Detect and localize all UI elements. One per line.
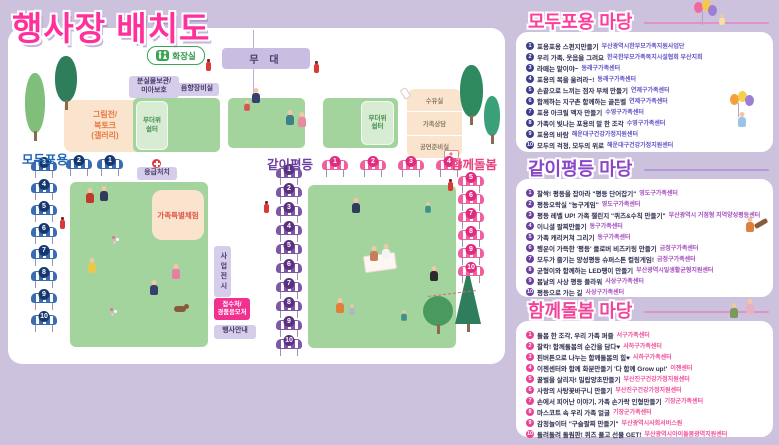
program-item-number: 5 xyxy=(526,375,534,383)
program-item-number: 9 xyxy=(526,419,534,427)
program-item-number: 1 xyxy=(526,42,534,50)
program-item: 3라떼는 말이야~동래구가족센터 xyxy=(526,62,765,73)
program-item-number: 10 xyxy=(526,430,534,438)
booth-number: 10 xyxy=(284,335,295,346)
program-item-org: 영도구가족센터 xyxy=(639,188,678,197)
zone-label-care: 함께돌봄 xyxy=(451,154,497,173)
program-item-org: 동래구가족센터 xyxy=(581,63,620,72)
program-item: 2찰칵! 함께돌봄의 순간을 담다♥사하구가족센터 xyxy=(526,340,765,351)
program-item-number: 7 xyxy=(526,255,534,263)
panel-care: 함께돌봄 마당 1돌봄 한 조각, 우리 가족 퍼즐서구가족센터2찰칵! 함께돌… xyxy=(516,297,773,323)
booth-inclusion-7: 7 xyxy=(31,249,57,269)
program-item-activity: 평등오락실 "농구게임" xyxy=(537,199,599,209)
person-with-balloons-figure xyxy=(738,112,746,127)
program-item-activity: 포용 아크릴 액자 만들기 xyxy=(537,107,602,117)
program-item: 7모두가 즐기는 양성평등 슈퍼스톤 컬링게임!금정구가족센터 xyxy=(526,253,765,264)
booth-inclusion-4: 4 xyxy=(31,183,57,203)
zone-label-equality: 같이평등 xyxy=(267,154,313,173)
program-item-org: 기장군가족센터 xyxy=(664,396,703,405)
panel-body: 1찰싹! 평등을 잡아라 "평등 단어잡기"영도구가족센터2평등오락실 "농구게… xyxy=(516,179,773,297)
page-title: 행사장 배치도 xyxy=(12,2,210,50)
exhibit-label: 사업전시 xyxy=(214,246,231,297)
booth-number: 9 xyxy=(284,316,295,327)
program-item: 8가족이 빛나는 포용의 말 한 조각수영구가족센터 xyxy=(526,117,765,128)
dog-icon xyxy=(174,306,186,312)
booth-number: 3 xyxy=(406,156,417,167)
booth-number: 2 xyxy=(74,155,85,166)
program-item-org: 사하구가족센터 xyxy=(623,341,662,350)
program-list: 1찰싹! 평등을 잡아라 "평등 단어잡기"영도구가족센터2평등오락실 "농구게… xyxy=(526,187,765,297)
program-item-org: 사하구가족센터 xyxy=(633,352,672,361)
reception-label: 접수처/ 경품응모처 xyxy=(214,298,250,320)
program-item-activity: 찰칵! 함께돌봄의 순간을 담다♥ xyxy=(537,341,620,351)
tree-icon xyxy=(55,56,77,110)
person-with-guitar-figure xyxy=(746,217,754,232)
booth-number: 3 xyxy=(284,202,295,213)
person-figure xyxy=(370,246,378,261)
program-item-org: 부산진구건강가정지원센터 xyxy=(624,374,690,383)
program-item-org: 기장군가족센터 xyxy=(613,407,652,416)
program-item: 8균형이와 함께하는 LED팽이 만들기부산광역시일생활균형지원센터 xyxy=(526,264,765,275)
program-item: 4포용의 복을 울려라~!동래구가족센터 xyxy=(526,73,765,84)
program-item-number: 6 xyxy=(526,386,534,394)
person-figure xyxy=(336,298,344,313)
seated-person-figure xyxy=(730,303,738,318)
program-item-activity: 포용포용 스펀지만들기 xyxy=(537,41,599,51)
program-item-number: 4 xyxy=(526,222,534,230)
program-item-number: 5 xyxy=(526,233,534,241)
program-item-activity: 평등 레벨 UP! 가족 챌린지 "퀴즈&수칙 만들기" xyxy=(537,210,666,220)
booth-inclusion-5: 5 xyxy=(31,205,57,225)
red-cross-icon xyxy=(152,159,161,168)
first-aid-label: 응급처치 xyxy=(137,167,177,180)
booth-number: 9 xyxy=(466,244,477,255)
program-item-activity: 가족 캐리커쳐 그리기 xyxy=(537,232,594,242)
program-item: 3평등 레벨 UP! 가족 챌린지 "퀴즈&수칙 만들기"부산광역시 거점형 지… xyxy=(526,209,765,220)
person-figure xyxy=(286,110,294,125)
program-list: 1포용포용 스펀지만들기부산광역시한부모가족지원사업단2우리 가족, 웃음을 그… xyxy=(526,40,765,150)
program-item-activity: 찰싹! 평등을 잡아라 "평등 단어잡기" xyxy=(537,188,636,198)
program-item-activity: 평등으로 가는 길 xyxy=(537,287,582,297)
person-figure xyxy=(425,202,431,213)
person-figure xyxy=(100,186,108,201)
fire-extinguisher-icon xyxy=(264,204,269,213)
booth-number: 5 xyxy=(39,201,50,212)
program-item: 8마스코트 속 우리 가족 얼굴기장군가족센터 xyxy=(526,406,765,417)
program-item-org: 부산광역시사회서비스원 xyxy=(622,418,683,427)
person-figure xyxy=(401,310,407,321)
program-item-org: 동구가족센터 xyxy=(597,232,630,241)
program-item-org: 한국한부모가족복지시설협회 부산지회 xyxy=(607,52,703,61)
booth-number: 10 xyxy=(39,311,50,322)
panel-inclusion: 모두포용 마당 1포용포용 스펀지만들기부산광역시한부모가족지원사업단2우리 가… xyxy=(516,8,773,34)
program-item-activity: 꿀벌을 살리자! 밀랍양초만들기 xyxy=(537,374,621,384)
program-item-org: 해운대구건강가정지원센터 xyxy=(572,129,638,138)
booth-number: 8 xyxy=(284,297,295,308)
zone-label-inclusion: 모두포용 xyxy=(22,149,68,168)
program-item-number: 5 xyxy=(526,86,534,94)
program-item-org: 사상구가족센터 xyxy=(585,287,624,296)
program-item: 9포용의 바람해운대구건강가정지원센터 xyxy=(526,128,765,139)
program-item-org: 연제구가족센터 xyxy=(629,96,668,105)
program-item-activity: 핀버튼으로 나누는 함께돌봄의 힘♥ xyxy=(537,352,630,362)
tree-icon xyxy=(484,96,500,144)
person-figure xyxy=(172,264,180,279)
program-item: 10평등으로 가는 길사상구가족센터 xyxy=(526,286,765,297)
booth-number: 6 xyxy=(39,223,50,234)
flowers-icon xyxy=(112,236,122,244)
program-item-org: 동래구가족센터 xyxy=(597,74,636,83)
program-item-activity: 우리 가족, 웃음을 그려요 xyxy=(537,52,604,62)
service-rooms: 수유실 가족상담 공연준비실 xyxy=(407,89,462,158)
flowers-icon xyxy=(110,308,120,316)
tree-icon xyxy=(25,73,45,141)
person-figure xyxy=(719,14,725,25)
program-item: 1찰싹! 평등을 잡아라 "평등 단어잡기"영도구가족센터 xyxy=(526,187,765,198)
event-info-label: 행사안내 xyxy=(214,325,256,339)
program-item-activity: 사랑의 사탕꽃바구니 만들기 xyxy=(537,385,612,395)
program-item-number: 2 xyxy=(526,200,534,208)
booth-number: 2 xyxy=(284,183,295,194)
program-item: 5가족 캐리커쳐 그리기동구가족센터 xyxy=(526,231,765,242)
program-item-number: 8 xyxy=(526,119,534,127)
program-item-activity: 포용의 바람 xyxy=(537,129,569,139)
program-item-number: 8 xyxy=(526,266,534,274)
booth-number: 9 xyxy=(39,289,50,300)
panel-title: 같이평등 마당 xyxy=(528,155,773,181)
booth-inclusion-10: 10 xyxy=(31,315,57,335)
program-item-number: 9 xyxy=(526,277,534,285)
program-item: 1포용포용 스펀지만들기부산광역시한부모가족지원사업단 xyxy=(526,40,765,51)
person-figure xyxy=(244,100,250,111)
panel-body: 1돌봄 한 조각, 우리 가족 퍼즐서구가족센터2찰칵! 함께돌봄의 순간을 담… xyxy=(516,321,773,437)
person-figure xyxy=(88,258,96,273)
program-item-activity: 이니셜 팔찌만들기 xyxy=(537,221,587,231)
program-item: 7포용 아크릴 액자 만들기수영구가족센터 xyxy=(526,106,765,117)
booth-care-1: 1 xyxy=(322,160,348,180)
person-figure xyxy=(252,88,260,103)
booth-care-3: 3 xyxy=(398,160,424,180)
program-item: 9감정놀이터 "구슬팔찌 만들기"부산광역시사회서비스원 xyxy=(526,417,765,428)
person-figure xyxy=(150,280,158,295)
panel-body: 1포용포용 스펀지만들기부산광역시한부모가족지원사업단2우리 가족, 웃음을 그… xyxy=(516,32,773,152)
program-item-activity: 함께하는 지구촌 함께하는 골든벨 xyxy=(537,96,626,106)
booth-number: 6 xyxy=(466,190,477,201)
person-figure xyxy=(349,304,355,315)
program-item-activity: 라떼는 말이야~ xyxy=(537,63,578,73)
program-item: 9봄날의 사상 평등 플라워사상구가족센터 xyxy=(526,275,765,286)
booth-number: 4 xyxy=(284,221,295,232)
event-layout-poster: 행사장 배치도 화장실 무 대 분실물보관/ 미아보호 음향장비실 xyxy=(0,0,779,445)
program-item: 5손끝으로 느끼는 점자 부채 만들기연제구가족센터 xyxy=(526,84,765,95)
program-item-number: 7 xyxy=(526,397,534,405)
program-item-number: 1 xyxy=(526,189,534,197)
program-item: 6행운이 가득한 '평등' 클로버 비즈키링 만들기금정구가족센터 xyxy=(526,242,765,253)
program-item: 4이니셜 팔찌만들기동구가족센터 xyxy=(526,220,765,231)
booth-number: 7 xyxy=(284,278,295,289)
venue-map: 화장실 무 대 분실물보관/ 미아보호 음향장비실 그림전/ 북토크 (갤러리)… xyxy=(8,28,505,364)
program-item-org: 금정구가족센터 xyxy=(657,254,696,263)
sound-room-label: 음향장비실 xyxy=(175,83,219,96)
program-item: 5꿀벌을 살리자! 밀랍양초만들기부산진구건강가정지원센터 xyxy=(526,373,765,384)
program-item-number: 6 xyxy=(526,97,534,105)
booth-number: 8 xyxy=(39,267,50,278)
program-item-number: 8 xyxy=(526,408,534,416)
program-item: 7손에서 피어난 이야기, 가족 손가락 인형만들기기장군가족센터 xyxy=(526,395,765,406)
program-item-number: 4 xyxy=(526,75,534,83)
booth-inclusion-9: 9 xyxy=(31,293,57,313)
panel-title: 모두포용 마당 xyxy=(528,8,773,34)
booth-inclusion-2: 2 xyxy=(66,159,92,179)
family-counsel-label: 가족상담 xyxy=(407,112,462,135)
program-item-number: 1 xyxy=(526,331,534,339)
person-figure xyxy=(382,244,390,259)
program-item-org: 부산광역시한부모가족지원사업단 xyxy=(602,41,685,50)
program-item-number: 3 xyxy=(526,353,534,361)
booth-number: 7 xyxy=(39,245,50,256)
program-item: 10돌려돌려 돌림판! 퀴즈 풀고 선물 GET!부산광역시아이돌봄광역지원센터 xyxy=(526,428,765,439)
lost-and-found-label: 분실물보관/ 미아보호 xyxy=(129,76,179,98)
program-item-org: 해운대구건강가정지원센터 xyxy=(607,140,673,149)
booth-number: 2 xyxy=(368,156,379,167)
program-item-number: 2 xyxy=(526,342,534,350)
program-item-number: 3 xyxy=(526,64,534,72)
program-item-activity: 가족이 빛나는 포용의 말 한 조각 xyxy=(537,118,624,128)
person-figure xyxy=(352,198,360,213)
program-item: 2평등오락실 "농구게임"영도구가족센터 xyxy=(526,198,765,209)
program-item-number: 10 xyxy=(526,141,534,149)
program-item-number: 7 xyxy=(526,108,534,116)
booth-inclusion-8: 8 xyxy=(31,271,57,291)
program-item-org: 연제구가족센터 xyxy=(631,85,670,94)
program-item-number: 6 xyxy=(526,244,534,252)
panel-equality: 같이평등 마당 1찰싹! 평등을 잡아라 "평등 단어잡기"영도구가족센터2평등… xyxy=(516,155,773,181)
program-item-number: 3 xyxy=(526,211,534,219)
program-item-org: 부산광역시아이돌봄광역지원센터 xyxy=(644,429,727,438)
booth-care-2: 2 xyxy=(360,160,386,180)
program-item-org: 동구가족센터 xyxy=(590,221,623,230)
booth-inclusion-6: 6 xyxy=(31,227,57,247)
program-item: 6사랑의 사탕꽃바구니 만들기부산진구건강가정지원센터 xyxy=(526,384,765,395)
program-item-activity: 돌봄 한 조각, 우리 가족 퍼즐 xyxy=(537,330,614,340)
heat-shelter-label: 무더위 쉼터 xyxy=(136,101,168,150)
program-item-activity: 균형이와 함께하는 LED팽이 만들기 xyxy=(537,265,633,275)
program-item: 4이젠센터와 함께 화분만들기 '다 함께 Grow up!'이젠센터 xyxy=(526,362,765,373)
program-item-activity: 이젠센터와 함께 화분만들기 '다 함께 Grow up!' xyxy=(537,363,667,373)
program-item-activity: 감정놀이터 "구슬팔찌 만들기" xyxy=(537,418,619,428)
program-item-org: 이젠센터 xyxy=(670,363,692,372)
program-item-activity: 모두의 걱정, 모두의 위로 xyxy=(537,140,604,150)
program-item-activity: 손끝으로 느끼는 점자 부채 만들기 xyxy=(537,85,628,95)
family-experience-label: 가족특별체험 xyxy=(152,190,204,240)
program-item-org: 수영구가족센터 xyxy=(605,107,644,116)
program-item-activity: 손에서 피어난 이야기, 가족 손가락 인형만들기 xyxy=(537,396,661,406)
booth-number: 7 xyxy=(466,208,477,219)
person-figure xyxy=(298,112,306,127)
stage-label: 무 대 xyxy=(222,48,310,69)
booth-equality-10: 10 xyxy=(276,339,302,359)
person-figure xyxy=(430,266,438,281)
program-item: 2우리 가족, 웃음을 그려요한국한부모가족복지시설협회 부산지회 xyxy=(526,51,765,62)
nursing-room-label: 수유실 xyxy=(407,89,462,112)
booth-care-10: 10 xyxy=(458,266,484,286)
program-item: 1돌봄 한 조각, 우리 가족 퍼즐서구가족센터 xyxy=(526,329,765,340)
program-item-org: 금정구가족센터 xyxy=(660,243,699,252)
program-item-org: 부산광역시일생활균형지원센터 xyxy=(636,265,713,274)
tree-icon xyxy=(460,65,483,125)
wc-figures-icon xyxy=(156,50,169,61)
booth-number: 6 xyxy=(284,259,295,270)
program-item-activity: 모두가 즐기는 양성평등 슈퍼스톤 컬링게임! xyxy=(537,254,654,264)
fire-extinguisher-icon xyxy=(314,64,319,73)
program-item-org: 수영구가족센터 xyxy=(627,118,666,127)
booth-number: 5 xyxy=(284,240,295,251)
booth-number: 5 xyxy=(466,172,477,183)
program-item-activity: 포용의 복을 울려라~! xyxy=(537,74,594,84)
seated-person-figure xyxy=(746,299,754,314)
program-item: 10모두의 걱정, 모두의 위로해운대구건강가정지원센터 xyxy=(526,139,765,150)
tree-icon xyxy=(423,296,453,334)
fire-extinguisher-icon xyxy=(206,62,211,71)
program-item-activity: 행운이 가득한 '평등' 클로버 비즈키링 만들기 xyxy=(537,243,657,253)
fire-extinguisher-icon xyxy=(448,182,453,191)
restroom-text: 화장실 xyxy=(172,50,195,62)
person-figure xyxy=(86,188,94,203)
program-item-org: 사상구가족센터 xyxy=(605,276,644,285)
booth-number: 4 xyxy=(39,179,50,190)
booth-number: 10 xyxy=(466,262,477,273)
program-item-number: 10 xyxy=(526,288,534,296)
program-item-activity: 봄날의 사상 평등 플라워 xyxy=(537,276,602,286)
heat-shelter-label: 무더위 쉼터 xyxy=(361,101,394,145)
program-item-org: 부산진구건강가정지원센터 xyxy=(615,385,681,394)
program-item-number: 2 xyxy=(526,53,534,61)
program-item: 3핀버튼으로 나누는 함께돌봄의 힘♥사하구가족센터 xyxy=(526,351,765,362)
booth-number: 1 xyxy=(105,155,116,166)
program-item-number: 9 xyxy=(526,130,534,138)
booth-number: 8 xyxy=(466,226,477,237)
booth-inclusion-1: 1 xyxy=(97,159,123,179)
program-item-number: 4 xyxy=(526,364,534,372)
fire-extinguisher-icon xyxy=(60,220,65,229)
booth-number: 1 xyxy=(330,156,341,167)
program-item-org: 서구가족센터 xyxy=(617,330,650,339)
program-item-org: 영도구가족센터 xyxy=(602,199,641,208)
program-item-activity: 마스코트 속 우리 가족 얼굴 xyxy=(537,407,610,417)
program-list: 1돌봄 한 조각, 우리 가족 퍼즐서구가족센터2찰칵! 함께돌봄의 순간을 담… xyxy=(526,329,765,439)
program-item-activity: 돌려돌려 돌림판! 퀴즈 풀고 선물 GET! xyxy=(537,429,641,439)
